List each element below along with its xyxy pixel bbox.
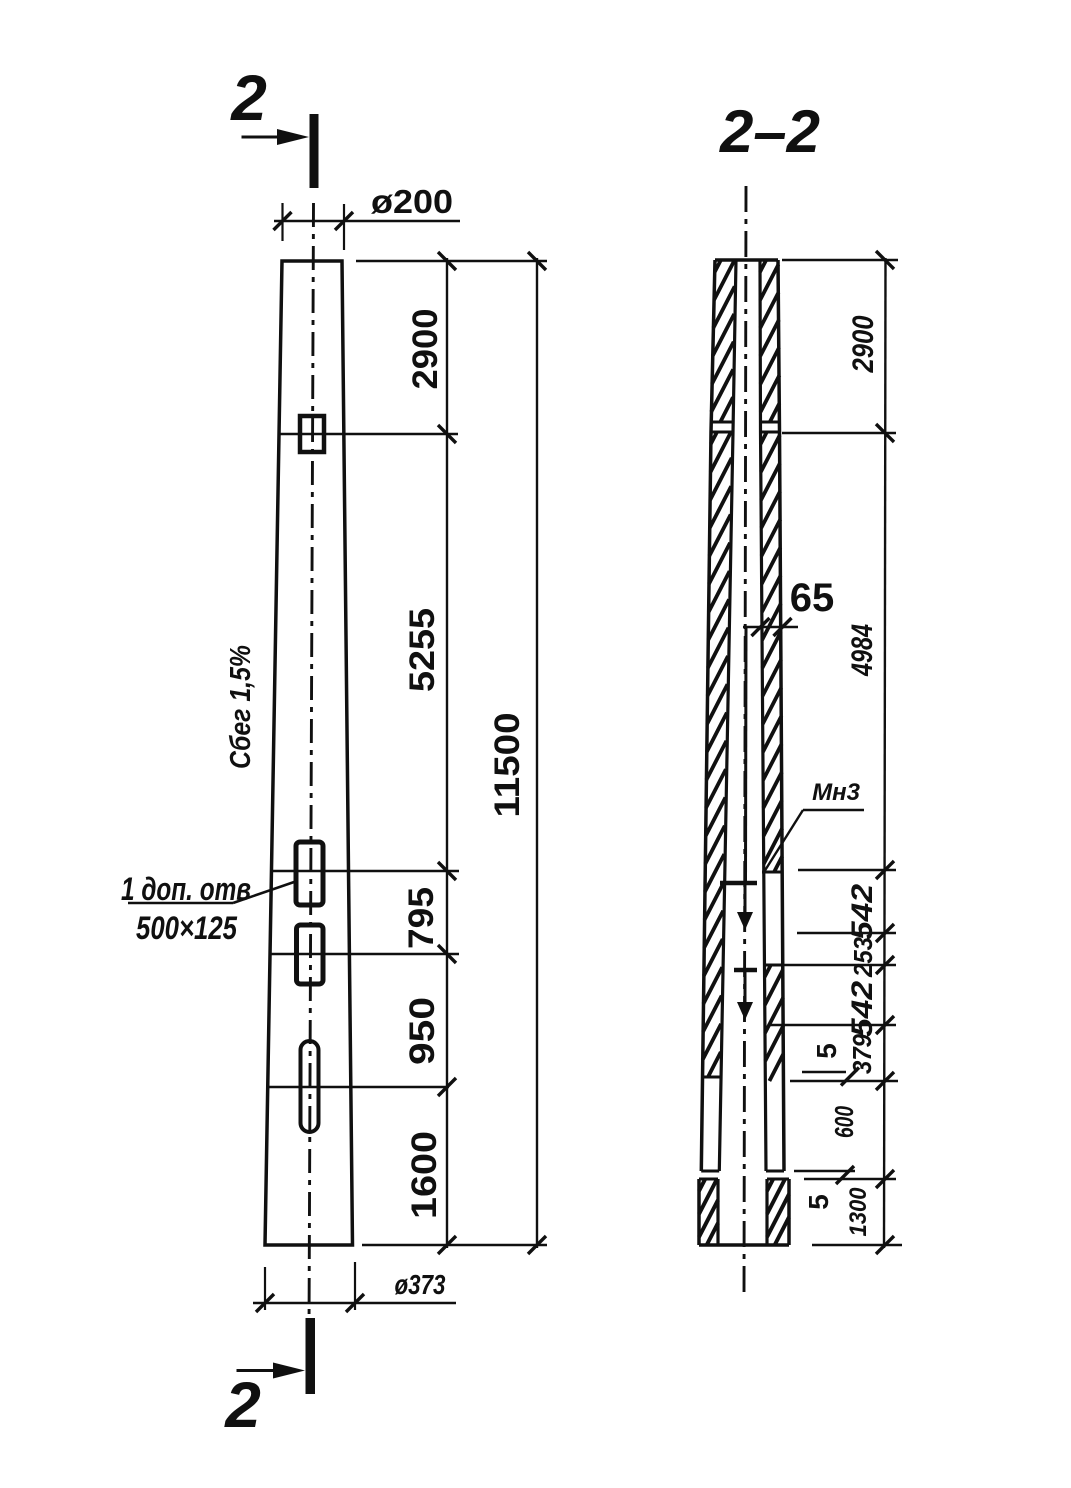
svg-text:2: 2 (230, 62, 267, 134)
svg-text:Сбег 1,5%: Сбег 1,5% (225, 645, 257, 769)
svg-text:795: 795 (402, 887, 441, 949)
svg-text:2: 2 (224, 1369, 261, 1441)
svg-text:542: 542 (846, 884, 879, 940)
svg-text:379: 379 (847, 1034, 877, 1074)
svg-text:2900: 2900 (406, 309, 445, 390)
svg-text:542: 542 (846, 981, 879, 1037)
svg-text:65: 65 (790, 576, 835, 620)
svg-text:600: 600 (829, 1106, 859, 1138)
svg-text:253: 253 (848, 937, 878, 978)
svg-text:950: 950 (403, 997, 442, 1065)
svg-text:ø373: ø373 (395, 1269, 446, 1300)
svg-text:5: 5 (811, 1043, 842, 1059)
svg-text:1300: 1300 (845, 1187, 872, 1237)
svg-text:1600: 1600 (405, 1131, 444, 1219)
svg-text:1 доп. отв: 1 доп. отв (121, 871, 251, 907)
svg-text:5: 5 (803, 1194, 834, 1210)
svg-text:11500: 11500 (488, 713, 527, 818)
svg-text:2900: 2900 (847, 315, 880, 373)
svg-text:Мн3: Мн3 (812, 779, 860, 806)
svg-text:2–2: 2–2 (719, 98, 820, 165)
svg-text:500×125: 500×125 (136, 910, 238, 946)
svg-text:ø200: ø200 (371, 183, 453, 220)
svg-text:5255: 5255 (403, 608, 442, 692)
svg-text:4984: 4984 (846, 624, 879, 677)
